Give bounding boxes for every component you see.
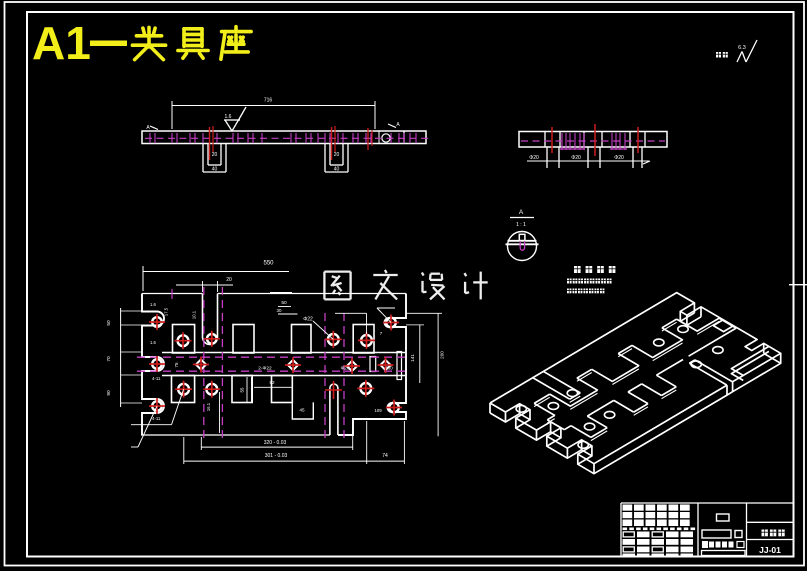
svg-text:90: 90 <box>106 390 112 396</box>
svg-text:20: 20 <box>226 277 232 283</box>
svg-text:1 : 1: 1 : 1 <box>516 222 526 228</box>
svg-text:Φ20: Φ20 <box>571 155 581 161</box>
svg-text:20: 20 <box>334 152 340 158</box>
svg-text:75: 75 <box>174 362 179 367</box>
svg-text:4-11: 4-11 <box>152 416 161 421</box>
svg-text:320 - 0.03: 320 - 0.03 <box>264 440 287 446</box>
svg-text:2-Φ22: 2-Φ22 <box>258 366 272 372</box>
svg-text:6.3: 6.3 <box>738 45 746 51</box>
svg-text:A: A <box>519 209 524 216</box>
svg-text:301 - 0.03: 301 - 0.03 <box>265 453 288 459</box>
svg-text:141: 141 <box>410 354 415 362</box>
svg-text:50: 50 <box>281 300 287 306</box>
svg-text:55: 55 <box>240 387 245 392</box>
svg-text:109: 109 <box>374 408 382 413</box>
svg-text:82: 82 <box>269 380 275 385</box>
svg-text:45: 45 <box>299 408 305 413</box>
svg-text:30: 30 <box>277 308 282 313</box>
svg-text:40: 40 <box>212 167 218 173</box>
svg-text:Φ20: Φ20 <box>341 366 350 371</box>
svg-text:16.1: 16.1 <box>206 402 211 411</box>
svg-text:50: 50 <box>106 320 112 326</box>
svg-text:4-11: 4-11 <box>152 376 161 381</box>
svg-text:716: 716 <box>264 98 273 104</box>
svg-text:JJ-01: JJ-01 <box>759 545 781 555</box>
svg-text:Φ20: Φ20 <box>529 155 539 161</box>
svg-text:1.6: 1.6 <box>150 302 156 307</box>
svg-text:A1: A1 <box>32 17 91 69</box>
svg-text:17.5: 17.5 <box>164 307 169 316</box>
svg-text:200: 200 <box>440 351 445 359</box>
svg-text:40: 40 <box>334 167 340 173</box>
svg-text:Φ20: Φ20 <box>614 155 624 161</box>
svg-text:1.6: 1.6 <box>150 340 156 345</box>
svg-text:10.1: 10.1 <box>192 310 197 319</box>
svg-text:160: 160 <box>385 366 393 371</box>
svg-text:Φ22: Φ22 <box>303 317 313 323</box>
svg-text:20: 20 <box>212 152 218 158</box>
svg-text:550: 550 <box>263 261 274 267</box>
svg-text:70: 70 <box>106 356 112 362</box>
svg-text:74: 74 <box>382 453 388 459</box>
svg-text:1.6: 1.6 <box>225 114 232 120</box>
